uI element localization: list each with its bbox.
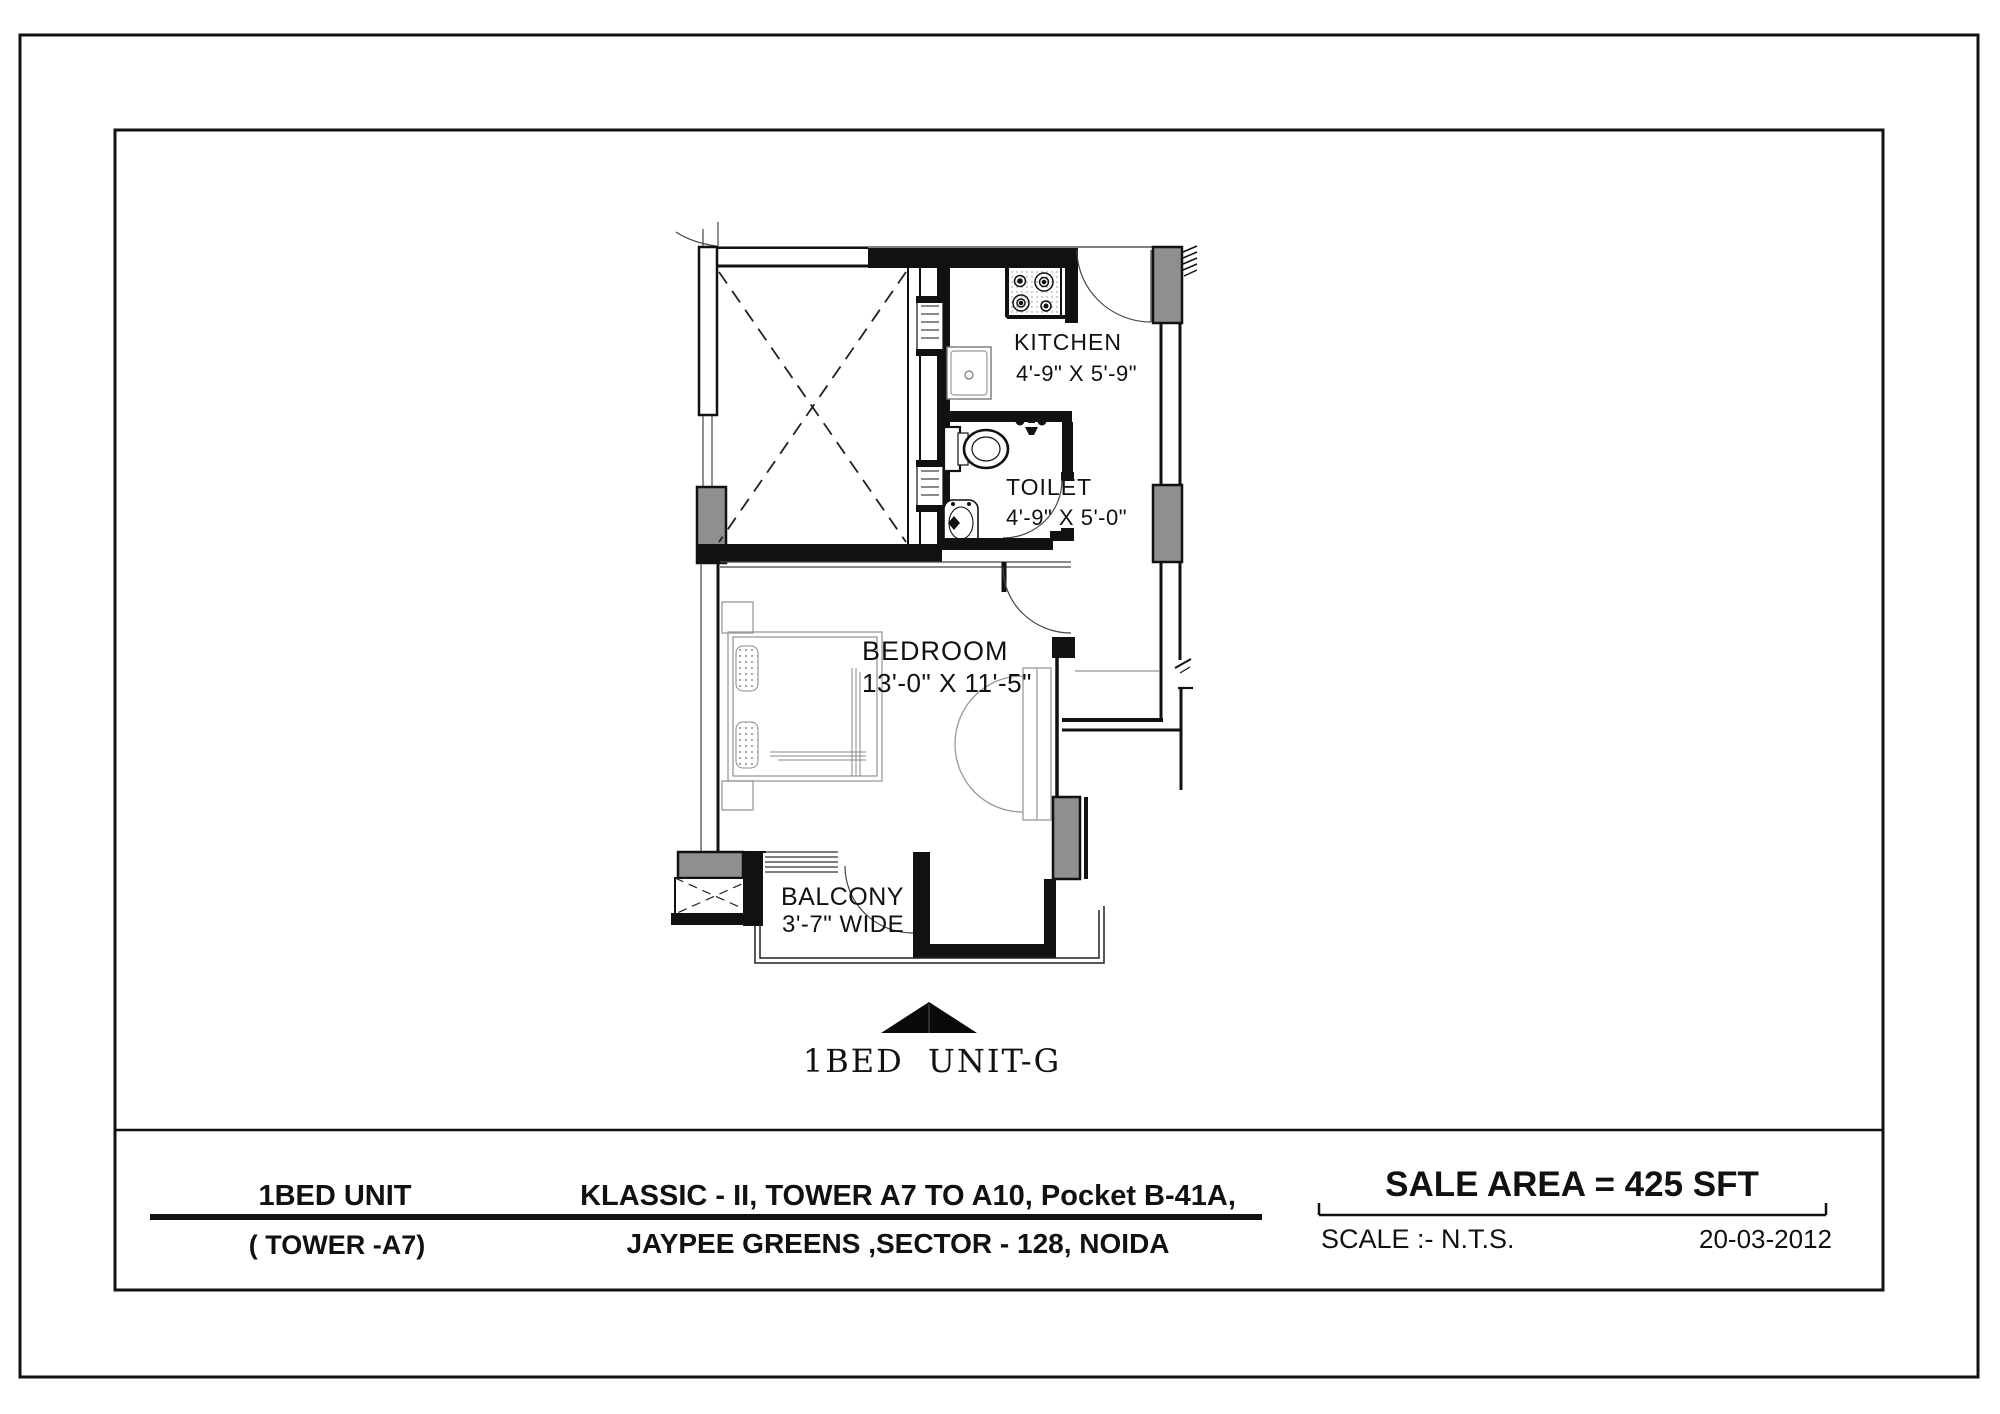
scale-label: SCALE :- N.T.S.	[1321, 1224, 1515, 1254]
toilet-dims: 4'-9" X 5'-0"	[1006, 505, 1127, 530]
balcony-label: BALCONY	[781, 883, 904, 911]
sale-area: SALE AREA = 425 SFT	[1385, 1165, 1759, 1204]
pillow	[736, 646, 758, 691]
toilet-top-wall	[937, 411, 1072, 422]
wall-vent-toilet	[916, 460, 944, 512]
bedroom-dims: 13'-0" X 11'-5"	[862, 668, 1032, 698]
toilet-label: TOILET	[1006, 474, 1092, 500]
column	[1053, 797, 1080, 879]
kitchen-top-wall	[868, 248, 1078, 268]
unit-name-label: 1BED UNIT-G	[803, 1042, 1061, 1080]
column	[678, 852, 743, 878]
column	[1153, 247, 1182, 323]
bedroom-north-wall	[698, 544, 942, 562]
balcony-left-pier	[743, 852, 763, 926]
unit-type: 1BED UNIT	[258, 1180, 411, 1212]
toilet-bottom-wall	[937, 538, 1053, 550]
kitchen-dims: 4'-9" X 5'-9"	[1016, 361, 1137, 386]
wc-toilet	[944, 427, 1008, 471]
kitchen-sink	[947, 347, 991, 399]
project-line2: JAYPEE GREENS ,SECTOR - 128, NOIDA	[626, 1228, 1169, 1259]
wall-vent-kitchen	[916, 296, 944, 356]
tower: ( TOWER -A7)	[249, 1230, 426, 1260]
floor-plan-drawing: KITCHEN 4'-9" X 5'-9"	[0, 0, 2000, 1414]
bedroom-label: BEDROOM	[862, 636, 1009, 666]
balcony-dims: 3'-7" WIDE	[782, 911, 904, 938]
drawing-sheet: KITCHEN 4'-9" X 5'-9"	[0, 0, 2000, 1414]
stove	[1007, 267, 1065, 317]
project-line1: KLASSIC - II, TOWER A7 TO A10, Pocket B-…	[580, 1180, 1236, 1212]
kitchen-label: KITCHEN	[1014, 329, 1122, 355]
date-label: 20-03-2012	[1699, 1224, 1832, 1254]
balcony-right-pier	[913, 852, 930, 958]
shaft-left-wall	[699, 247, 717, 415]
pillow	[736, 722, 758, 768]
column	[1153, 485, 1182, 562]
